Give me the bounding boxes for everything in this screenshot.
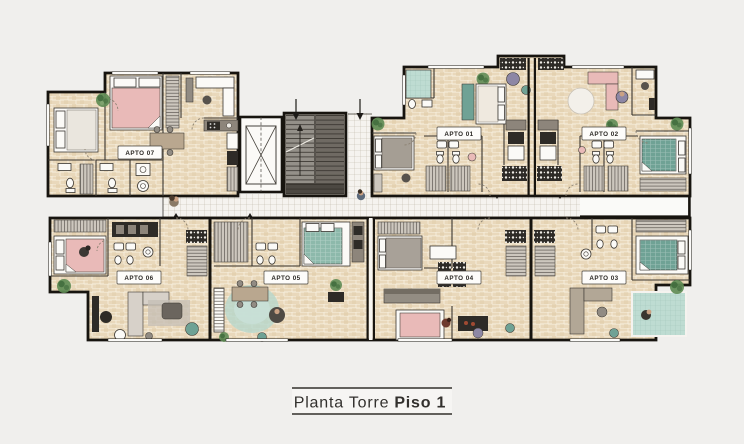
sofa — [384, 289, 440, 303]
shower — [406, 70, 431, 98]
toilet-icon — [597, 240, 603, 248]
stove-icon — [354, 226, 363, 235]
stool — [146, 333, 153, 340]
page-title: Planta TorrePiso 1 — [294, 395, 447, 412]
toilet-icon — [67, 178, 74, 188]
toilet-icon — [409, 100, 416, 109]
dining-table — [430, 246, 456, 259]
plant-icon — [372, 118, 385, 131]
apto-02-label-text: APTO 02 — [589, 131, 618, 138]
corridor-white-segment — [580, 194, 690, 218]
apto-05-label: APTO 05 — [264, 271, 308, 284]
toilet-icon — [607, 155, 613, 163]
corridor-tiles-horizontal — [163, 194, 580, 218]
bed — [110, 76, 162, 130]
sink-icon — [592, 141, 602, 148]
floor-plan-svg: APTO 07 — [0, 0, 744, 444]
stove-icon — [207, 122, 220, 131]
plant-icon — [57, 279, 71, 293]
page-title-regular: Planta Torre — [294, 395, 390, 412]
bed — [54, 108, 98, 152]
rug — [568, 88, 594, 114]
desk — [636, 70, 654, 79]
apto-02-label: APTO 02 — [582, 127, 626, 140]
sink-icon — [114, 243, 124, 250]
corridor-tiles-vertical — [348, 113, 372, 196]
coffee-table — [203, 96, 212, 105]
toilet-icon — [115, 256, 121, 264]
armchair — [100, 311, 112, 323]
washer — [138, 181, 149, 192]
sink-icon — [449, 141, 459, 148]
shelf — [458, 316, 488, 331]
shelf — [649, 98, 655, 110]
chair — [641, 82, 649, 90]
pouf — [473, 328, 483, 338]
desk — [374, 174, 382, 192]
washer — [136, 164, 150, 176]
apto-05-label-text: APTO 05 — [271, 275, 300, 282]
bed — [640, 136, 686, 174]
apto-07-label: APTO 07 — [118, 146, 162, 159]
person-icon — [169, 195, 179, 207]
wardrobe — [462, 84, 474, 120]
kitchen-sink — [227, 123, 232, 128]
desk — [186, 78, 193, 102]
fridge — [540, 146, 556, 160]
title-block: Planta TorrePiso 1 — [292, 388, 452, 414]
wardrobe — [166, 76, 179, 128]
stairs-icon — [284, 113, 346, 196]
sink-icon — [437, 141, 447, 148]
pouf — [186, 323, 199, 336]
washer — [581, 249, 591, 259]
sink-icon — [422, 100, 432, 107]
bed — [636, 236, 688, 274]
wardrobe — [640, 178, 686, 191]
armchair — [162, 303, 182, 319]
coffee-table — [597, 307, 607, 317]
apto-03-label-text: APTO 03 — [589, 275, 618, 282]
toilet-icon — [127, 256, 133, 264]
toilet-icon — [437, 155, 443, 163]
sink-icon — [608, 226, 618, 233]
apto-03-label: APTO 03 — [582, 271, 626, 284]
sink-icon — [126, 243, 136, 250]
bed — [302, 222, 350, 266]
wardrobe — [214, 222, 248, 262]
chair — [402, 174, 411, 183]
stair-core — [240, 113, 346, 196]
sink-icon — [268, 243, 278, 250]
plant-icon — [477, 73, 490, 86]
apto-04-label-text: APTO 04 — [444, 275, 473, 282]
apto-04-label: APTO 04 — [437, 271, 481, 284]
apto-01-label: APTO 01 — [437, 127, 481, 140]
sink-icon — [604, 141, 614, 148]
sink-icon — [468, 153, 476, 161]
toilet-icon — [611, 240, 617, 248]
sink-icon — [596, 226, 606, 233]
plant-icon — [96, 93, 110, 107]
sink-icon — [58, 164, 71, 171]
sink-icon — [579, 147, 586, 154]
wardrobe — [54, 220, 106, 232]
toilet-icon — [453, 155, 459, 163]
bed — [54, 236, 106, 274]
rug — [632, 292, 686, 336]
elevator-x-icon — [240, 117, 282, 192]
bookshelf — [328, 292, 344, 302]
toilet-icon — [593, 155, 599, 163]
bookshelf — [214, 288, 224, 332]
plant-icon — [670, 280, 684, 294]
sink-icon — [100, 164, 113, 171]
kitchen-counter — [534, 230, 555, 276]
apto-06-label: APTO 06 — [117, 271, 161, 284]
apto-06-label-text: APTO 06 — [124, 275, 153, 282]
bed — [476, 84, 506, 124]
fridge — [508, 146, 524, 160]
kitchen-counter — [352, 222, 364, 262]
page-title-bold: Piso 1 — [394, 395, 446, 412]
person-icon — [274, 309, 279, 314]
bed — [378, 236, 422, 270]
pouf — [506, 324, 515, 333]
pouf — [610, 329, 619, 338]
fridge — [227, 133, 238, 149]
plant-icon — [330, 279, 342, 291]
plant-icon — [671, 118, 684, 131]
bed — [374, 136, 414, 170]
apto-07-label-text: APTO 07 — [125, 150, 154, 157]
tv-unit — [92, 296, 99, 332]
person-icon — [620, 92, 625, 97]
apto-01-label-text: APTO 01 — [444, 131, 473, 138]
kitchen-counter — [186, 230, 207, 276]
toilet-icon — [269, 256, 275, 264]
wardrobe — [636, 220, 686, 232]
toilet-icon — [109, 178, 116, 188]
wardrobe — [378, 222, 420, 234]
toilet-icon — [257, 256, 263, 264]
bed — [396, 310, 451, 340]
washer — [143, 247, 153, 257]
sink-icon — [256, 243, 266, 250]
armchair — [507, 73, 520, 86]
